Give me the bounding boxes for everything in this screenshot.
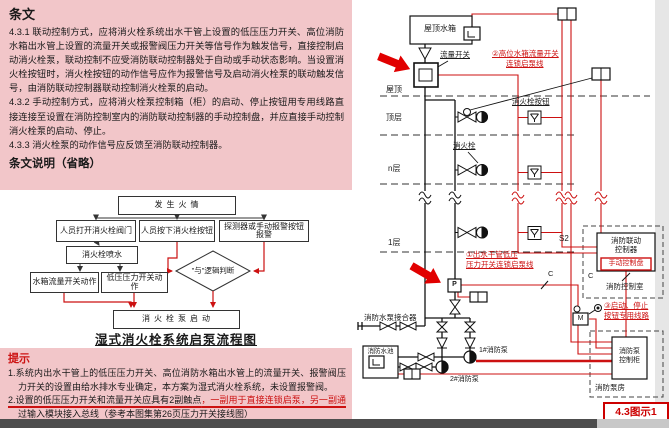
- module-m-label: M: [573, 315, 588, 323]
- tips-header: 提示: [8, 350, 346, 366]
- pump-room-label: 消防泵房: [595, 384, 625, 393]
- linkage-controller-label-2: 控制器: [597, 246, 655, 255]
- bottom-bar-right-segment: [597, 419, 669, 428]
- provisions-panel: 条文 4.3.1 联动控制方式，应将消火栓系统出水干管上设置的低压压力开关、高位…: [0, 0, 352, 190]
- note-flow-line1: ②高位水箱流量开关: [492, 50, 559, 59]
- tip-2-highlight: ，一副用于直接连锁启泵，另一副通: [201, 395, 346, 405]
- flowchart: 发生火情 人员打开消火栓阀门 人员按下消火栓按钮 探测器或手动报警按钮报警 消火…: [0, 190, 352, 348]
- tip-item-2: 2.设置的低压压力开关和流量开关应具有2副触点，一副用于直接连锁启泵，另一副通过…: [8, 394, 346, 421]
- control-room-label: 消防控制室: [606, 283, 644, 292]
- tip-2-text: 2.设置的低压压力开关和流量开关应具有2副触点: [8, 395, 201, 405]
- hydrant-symbols: [455, 112, 488, 239]
- fc-fire-occurs: 发生火情: [118, 196, 236, 215]
- s2-label: S2: [559, 234, 569, 243]
- fc-detector-alarm: 探测器或手动报警按钮报警: [219, 220, 309, 242]
- pump-cabinet-label-1: 消防泵: [612, 348, 647, 356]
- pump1-label: 1#消防泵: [479, 347, 508, 355]
- red-arrow-pressure-switch: [407, 258, 445, 291]
- manual-panel-label: 手动控制盘: [601, 260, 651, 268]
- fc-open-valve: 人员打开消火栓阀门: [56, 220, 136, 242]
- fc-press-button: 人员按下消火栓按钮: [139, 220, 215, 242]
- provisions-header: 条文: [9, 4, 344, 23]
- c-label-2: C: [588, 272, 593, 281]
- flow-switch-box: [419, 69, 432, 81]
- pump2-label: 2#消防泵: [450, 376, 479, 384]
- floor-n-label: n层: [388, 164, 400, 173]
- tip-2-continuation: 过输入模块接入总线（参考本图集第26页压力开关接线图）: [18, 409, 253, 419]
- flowchart-caption: 湿式消火栓系统启泵流程图: [0, 329, 352, 348]
- fc-pressure-switch-act: 低压压力开关动作: [101, 272, 168, 293]
- note-pressure-line1: ①出水干管低压: [466, 251, 518, 260]
- hydrant-button-symbols: [528, 111, 541, 240]
- system-diagram: 屋顶水箱 流量开关 ②高位水箱流量开关 连锁启泵线 屋顶 顶层 n层 1层 消火…: [352, 0, 669, 428]
- floor-lines: [380, 96, 650, 252]
- hydrant-label: 消火栓: [453, 142, 476, 151]
- fc-pump-start: 消火栓泵启动: [113, 310, 240, 329]
- pump-cabinet-label-2: 控制柜: [612, 357, 647, 365]
- fc-and-logic-label: "与"逻辑判断: [178, 265, 248, 276]
- pool-level-module: [369, 356, 384, 368]
- page: 条文 4.3.1 联动控制方式，应将消火栓系统出水干管上设置的低压压力开关、高位…: [0, 0, 669, 428]
- explanation-header: 条文说明（省略）: [9, 155, 344, 171]
- tip-item-1: 1.系统内出水干管上的低压压力开关、高位消防水箱出水管上的流量开关、报警阀压力开…: [8, 367, 346, 394]
- clause-4-3-1: 4.3.1 联动控制方式，应将消火栓系统出水干管上设置的低压压力开关、高位消防水…: [9, 25, 344, 95]
- red-arrow-flow-switch: [375, 48, 413, 77]
- floor-roof-label: 屋顶: [386, 85, 402, 94]
- siamese-connector-label: 消防水泵接合器: [364, 314, 417, 323]
- clause-4-3-3: 4.3.3 消火栓泵的动作信号应反馈至消防联动控制器。: [9, 138, 344, 152]
- note-flow-line2: 连锁启泵线: [506, 60, 544, 69]
- bottom-bar: [0, 419, 669, 428]
- note-startstop-line2: 按钮专用线路: [604, 312, 649, 321]
- hydrant-button-label: 消火栓按钮: [512, 98, 550, 107]
- floor-1-label: 1层: [388, 238, 400, 247]
- c-label-1: C: [548, 270, 553, 279]
- roof-tank-label: 屋顶水箱: [412, 24, 468, 33]
- floor-top-label: 顶层: [386, 113, 402, 122]
- fire-pool-label: 消防水池: [364, 348, 397, 355]
- note-startstop-line1: ③启动、停止: [604, 302, 648, 311]
- pipe-breaks: [419, 191, 607, 204]
- fc-flow-switch-act: 水箱流量开关动作: [30, 272, 99, 293]
- pressure-switch-p-label: P: [448, 281, 461, 289]
- tips-panel: 提示 1.系统内出水干管上的低压压力开关、高位消防水箱出水管上的流量开关、报警阀…: [0, 348, 352, 428]
- clause-4-3-2: 4.3.2 手动控制方式，应将消火栓泵控制箱（柜）的启动、停止按钮用专用线路直接…: [9, 95, 344, 137]
- flow-switch-label: 流量开关: [440, 51, 470, 60]
- fc-hydrant-spray: 消火栓喷水: [66, 246, 138, 264]
- funnel-symbol: [419, 48, 431, 59]
- note-pressure-line2: 压力开关连锁启泵线: [466, 261, 534, 270]
